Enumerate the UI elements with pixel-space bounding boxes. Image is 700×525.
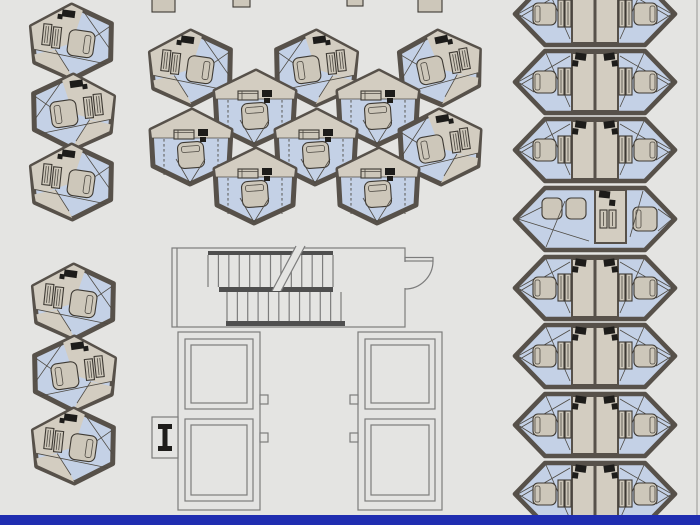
door-notch bbox=[260, 433, 268, 442]
stair-landing-band bbox=[208, 251, 333, 255]
stair-landing-band bbox=[226, 321, 345, 326]
door-notch bbox=[350, 433, 358, 442]
door-notch bbox=[260, 395, 268, 404]
cutoff-furniture bbox=[152, 0, 175, 12]
right-edge-line bbox=[696, 0, 698, 525]
cutoff-furniture bbox=[418, 0, 442, 12]
door-notch bbox=[350, 395, 358, 404]
pod-row bbox=[515, 394, 675, 456]
pod-row bbox=[515, 51, 675, 113]
pod-row bbox=[515, 188, 675, 250]
architectural-floor-plan bbox=[0, 0, 700, 525]
pod-row bbox=[515, 0, 675, 45]
cutoff-furniture bbox=[233, 0, 250, 7]
footer-bar bbox=[0, 515, 700, 525]
cutoff-furniture bbox=[347, 0, 363, 6]
pod-row bbox=[515, 325, 675, 387]
pod-row bbox=[515, 257, 675, 319]
pod-row bbox=[515, 119, 675, 181]
floor-plan-stage bbox=[0, 0, 700, 525]
right-pod-strip bbox=[515, 0, 675, 525]
